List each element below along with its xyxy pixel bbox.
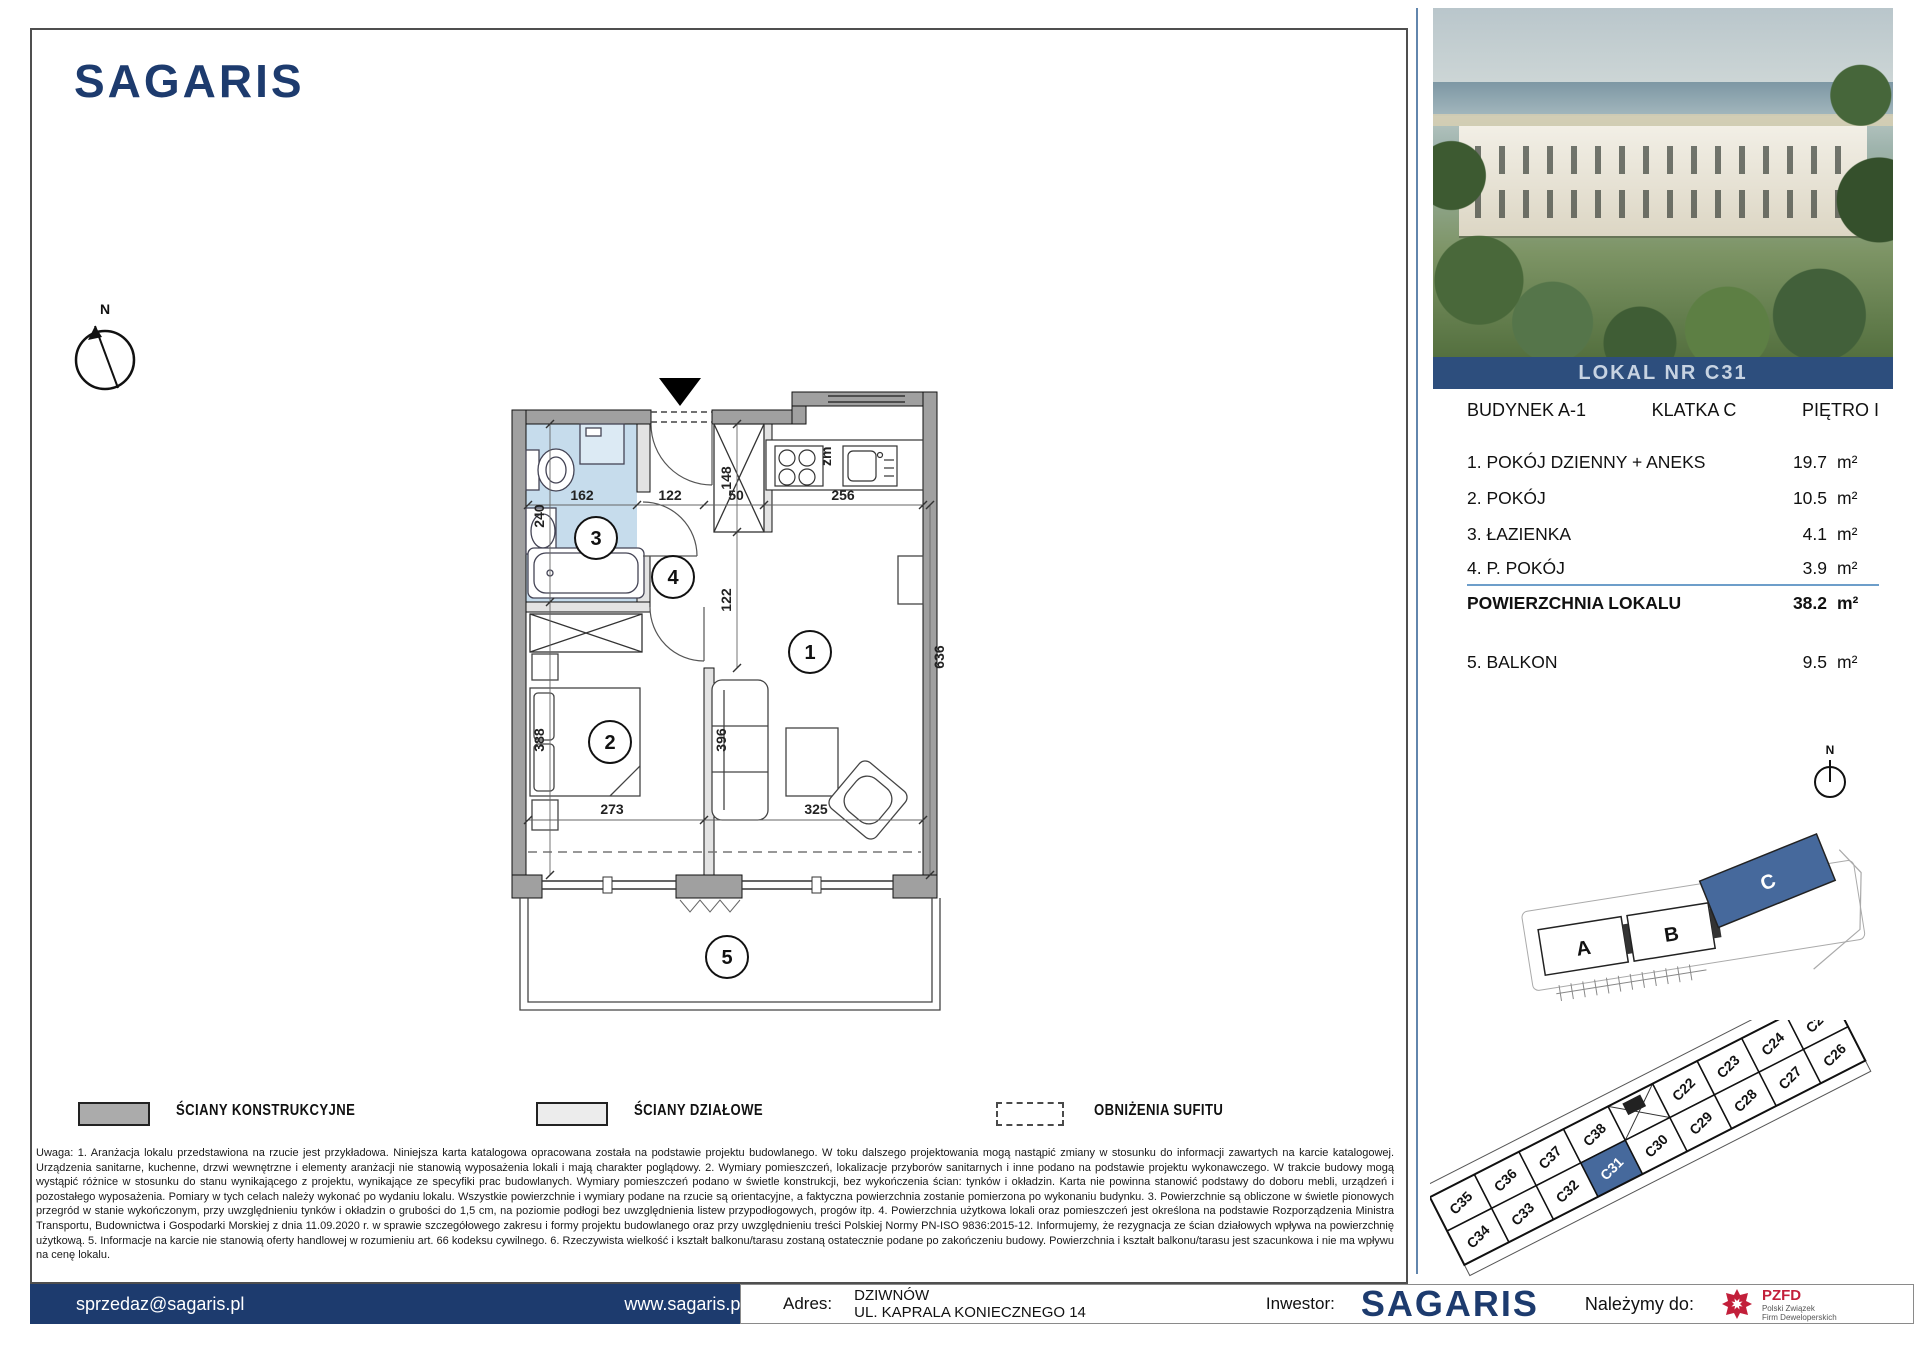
catalog-card-page: SAGARIS N [0, 0, 1920, 1356]
room-5-label: 5 [721, 947, 732, 969]
floor-plan: zm [400, 370, 1010, 1030]
kitchen-note: zm [818, 447, 834, 466]
room-row-unit: m² [1827, 452, 1879, 473]
balcony-name: 5. BALKON [1467, 652, 1769, 673]
legend-swatch-partition [536, 1102, 608, 1126]
dim-bedroom-height: 388 [531, 728, 547, 752]
pzfd-line1: Polski Związek [1762, 1304, 1837, 1313]
room-1-label: 1 [804, 642, 815, 664]
room-2-label: 2 [604, 732, 615, 754]
room-row-name: 4. P. POKÓJ [1467, 558, 1769, 579]
compass-north-label: N [100, 301, 110, 317]
balcony-area: 9.5 [1769, 652, 1827, 673]
balcony-row: 5. BALKON 9.5 m² [1467, 652, 1879, 673]
sagaris-logo: SAGARIS [74, 54, 305, 108]
dim-hall-width: 122 [658, 487, 682, 503]
legend-label-ceiling: OBNIŻENIA SUFITU [1094, 1102, 1223, 1120]
living-furniture [712, 556, 923, 842]
building-label: BUDYNEK A-1 [1467, 400, 1586, 421]
room-row: 3. ŁAZIENKA 4.1 m² [1467, 524, 1879, 545]
site-plan: A B C [1420, 830, 1900, 1020]
address-street: UL. KAPRALA KONIECZNEGO 14 [854, 1304, 1086, 1321]
investor-logo: SAGARIS [1361, 1283, 1539, 1325]
entrance-marker-icon [659, 378, 701, 406]
north-compass-icon: N [58, 298, 158, 402]
pzfd-logo-icon [1720, 1287, 1754, 1321]
total-area-name: POWIERZCHNIA LOKALU [1467, 593, 1769, 614]
total-area-row: POWIERZCHNIA LOKALU 38.2 m² [1467, 593, 1879, 614]
address-value: DZIWNÓW UL. KAPRALA KONIECZNEGO 14 [854, 1287, 1086, 1321]
entrance-door [651, 378, 712, 485]
total-area-unit: m² [1827, 593, 1879, 614]
room-row-area: 10.5 [1769, 488, 1827, 509]
pzfd-acronym: PZFD [1762, 1287, 1837, 1304]
address-label: Adres: [783, 1294, 832, 1314]
staircase-label: KLATKA C [1652, 400, 1737, 421]
photo-trees [1433, 8, 1893, 357]
panel-divider [1416, 8, 1418, 1274]
footer-info-box: Adres: DZIWNÓW UL. KAPRALA KONIECZNEGO 1… [740, 1284, 1914, 1324]
balcony-unit: m² [1827, 652, 1879, 673]
room-row-area: 19.7 [1769, 452, 1827, 473]
room-row-area: 4.1 [1769, 524, 1827, 545]
room-row-unit: m² [1827, 488, 1879, 509]
room-row: 4. P. POKÓJ 3.9 m² [1467, 558, 1879, 579]
room-3-label: 3 [590, 528, 601, 550]
dim-living-width: 325 [804, 801, 828, 817]
room-row-name: 3. ŁAZIENKA [1467, 524, 1769, 545]
dim-kitchen-width: 256 [831, 487, 855, 503]
room-row-area: 3.9 [1769, 558, 1827, 579]
floor-label: PIĘTRO I [1802, 400, 1879, 421]
dim-bath-height: 240 [531, 504, 547, 528]
legend-swatch-ceiling [996, 1102, 1064, 1126]
dim-hall-height: 122 [718, 588, 734, 612]
footer-website-link[interactable]: www.sagaris.pl [624, 1294, 744, 1315]
panel-compass-north-label: N [1826, 743, 1835, 757]
dim-bath-width: 162 [570, 487, 594, 503]
address-city: DZIWNÓW [854, 1287, 929, 1304]
legend-label-partition: ŚCIANY DZIAŁOWE [634, 1102, 763, 1120]
footer-email-link[interactable]: sprzedaz@sagaris.pl [76, 1294, 244, 1315]
room-row: 2. POKÓJ 10.5 m² [1467, 488, 1879, 509]
room-row-unit: m² [1827, 558, 1879, 579]
bedroom-wardrobe [530, 614, 642, 652]
room-row-unit: m² [1827, 524, 1879, 545]
unit-banner: LOKAL NR C31 [1433, 357, 1893, 389]
dim-bedroom-width: 273 [600, 801, 624, 817]
table-divider-line [1467, 584, 1879, 586]
room-row-name: 2. POKÓJ [1467, 488, 1769, 509]
dim-living-height: 636 [931, 645, 947, 669]
pzfd-text-block: PZFD Polski Związek Firm Deweloperskich [1762, 1287, 1837, 1322]
dim-closet-height: 148 [718, 466, 734, 490]
legend-label-structural: ŚCIANY KONSTRUKCYJNE [176, 1102, 355, 1120]
panel-north-compass-icon: N [1800, 742, 1860, 806]
building-render-photo [1433, 8, 1893, 357]
room-row: 1. POKÓJ DZIENNY + ANEKS 19.7 m² [1467, 452, 1879, 473]
dim-sofa-height: 396 [713, 728, 729, 752]
disclaimer-text: Uwaga: 1. Aranżacja lokalu przedstawiona… [36, 1146, 1394, 1263]
total-area-value: 38.2 [1769, 593, 1827, 614]
legend-swatch-structural [78, 1102, 150, 1126]
room-4-label: 4 [667, 567, 679, 589]
footer-contact-bar: sprzedaz@sagaris.pl www.sagaris.pl [30, 1284, 740, 1324]
member-label: Należymy do: [1585, 1294, 1694, 1315]
unit-header-row: BUDYNEK A-1 KLATKA C PIĘTRO I [1467, 400, 1879, 421]
pzfd-line2: Firm Deweloperskich [1762, 1313, 1837, 1322]
kitchen-annex [766, 440, 923, 490]
room-row-name: 1. POKÓJ DZIENNY + ANEKS [1467, 452, 1769, 473]
investor-label: Inwestor: [1266, 1294, 1335, 1314]
